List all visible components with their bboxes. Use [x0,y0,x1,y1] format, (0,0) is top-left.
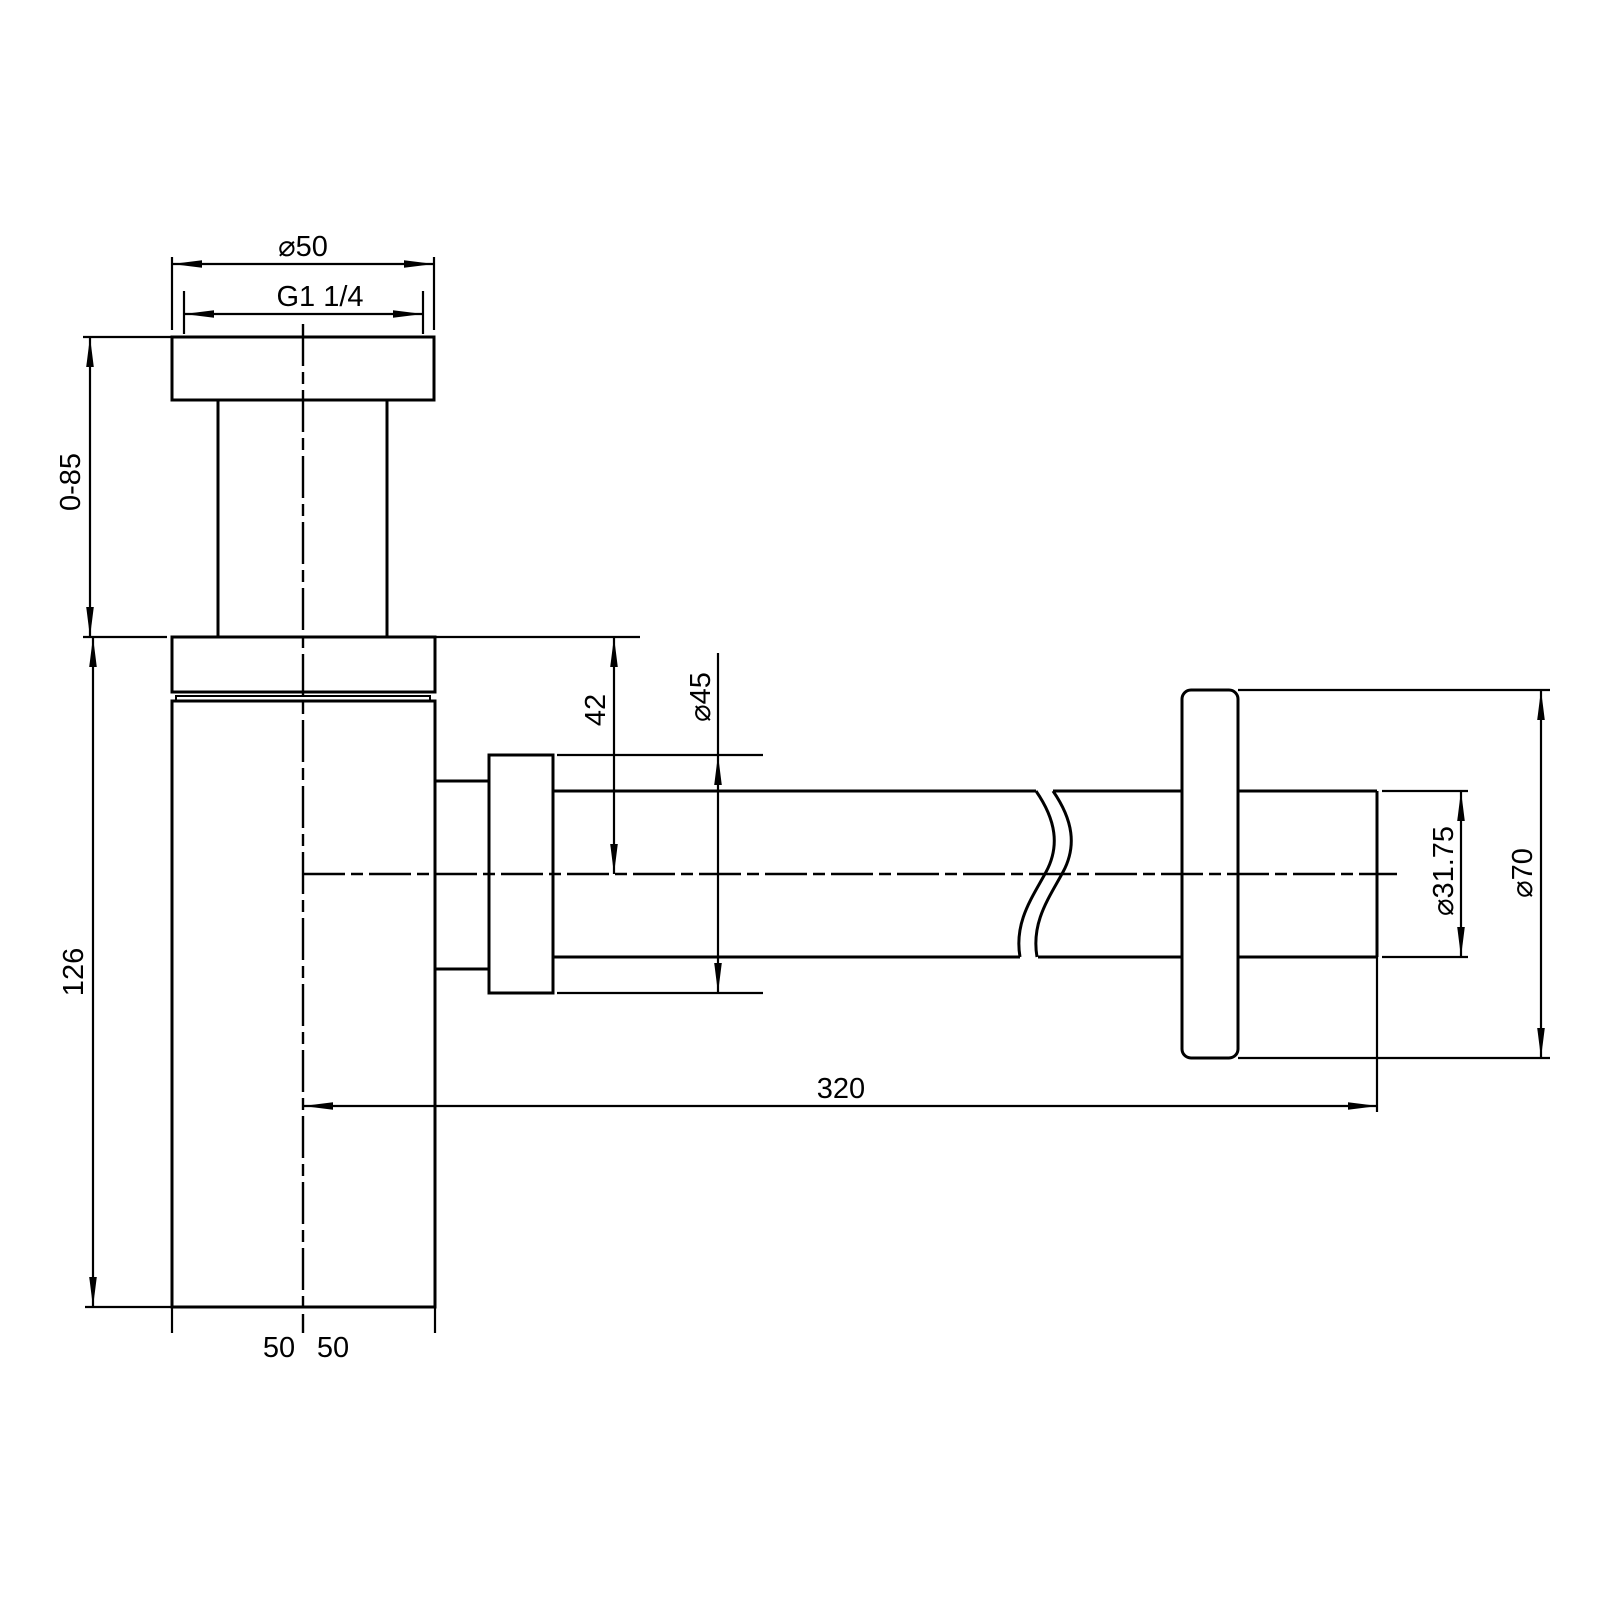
dim-inlet-adjust-range: 0-85 [55,337,172,637]
dim-label-body-height: 126 [58,948,90,996]
dim-label-nut-od: ⌀45 [685,672,717,722]
dim-label-outlet-reach: 320 [817,1073,865,1105]
dim-label-thread-size: G1 1/4 [276,281,363,313]
dim-body-height: 126 [58,637,172,1307]
dim-label-wall-flange-od: ⌀70 [1507,848,1539,898]
dim-label-bottom-width-right: 50 [317,1332,349,1364]
bottle-trap-drawing: ⌀50 G1 1/4 0-85 126 42 ⌀45 ⌀70 [0,0,1600,1600]
dim-label-inlet-adjust-range: 0-85 [55,453,87,511]
dim-label-bottom-width-left: 50 [263,1332,295,1364]
dim-outlet-reach: 320 [303,957,1378,1112]
dim-label-outlet-pipe-od: ⌀31.75 [1428,826,1460,916]
dim-label-flange-od: ⌀50 [278,231,328,263]
dim-label-outlet-offset: 42 [580,694,612,726]
technical-drawing-canvas: ⌀50 G1 1/4 0-85 126 42 ⌀45 ⌀70 [0,0,1600,1600]
centerlines [303,324,1397,1333]
